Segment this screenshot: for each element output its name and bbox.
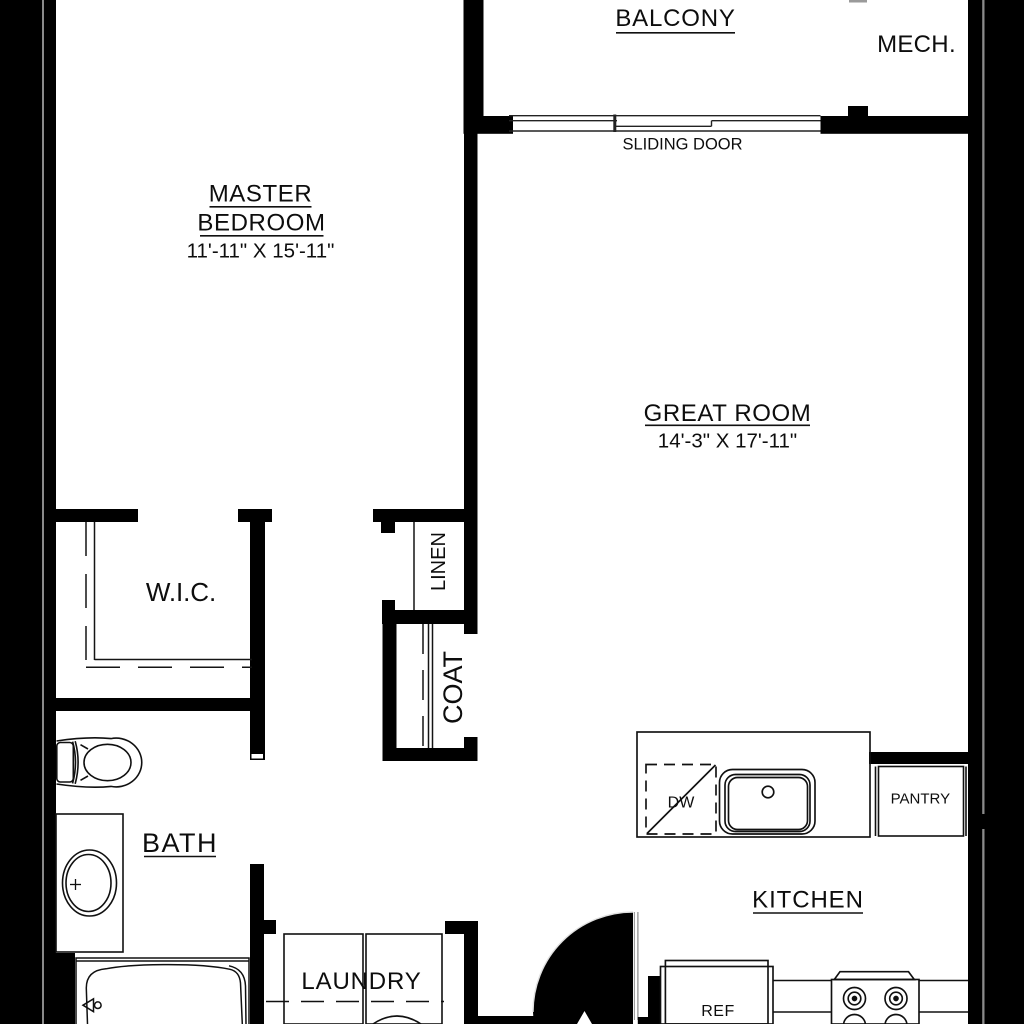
- svg-text:BATH: BATH: [142, 828, 218, 858]
- svg-text:PANTRY: PANTRY: [891, 791, 950, 808]
- svg-text:BEDROOM: BEDROOM: [197, 210, 325, 237]
- svg-text:DW: DW: [668, 795, 696, 812]
- svg-text:W.I.C.: W.I.C.: [146, 577, 216, 607]
- svg-text:14'-3" X 17'-11": 14'-3" X 17'-11": [658, 430, 797, 453]
- svg-text:GREAT ROOM: GREAT ROOM: [644, 400, 812, 427]
- svg-text:KITCHEN: KITCHEN: [752, 887, 864, 914]
- svg-text:LAUNDRY: LAUNDRY: [301, 968, 421, 995]
- svg-text:COAT: COAT: [438, 651, 468, 724]
- svg-text:MECH.: MECH.: [877, 31, 956, 58]
- svg-text:LINEN: LINEN: [428, 532, 450, 591]
- svg-text:SLIDING DOOR: SLIDING DOOR: [622, 136, 742, 154]
- svg-text:MASTER: MASTER: [209, 181, 313, 208]
- svg-text:11'-11" X 15'-11": 11'-11" X 15'-11": [187, 240, 335, 263]
- svg-text:REF: REF: [701, 1003, 735, 1020]
- svg-text:BALCONY: BALCONY: [615, 5, 735, 32]
